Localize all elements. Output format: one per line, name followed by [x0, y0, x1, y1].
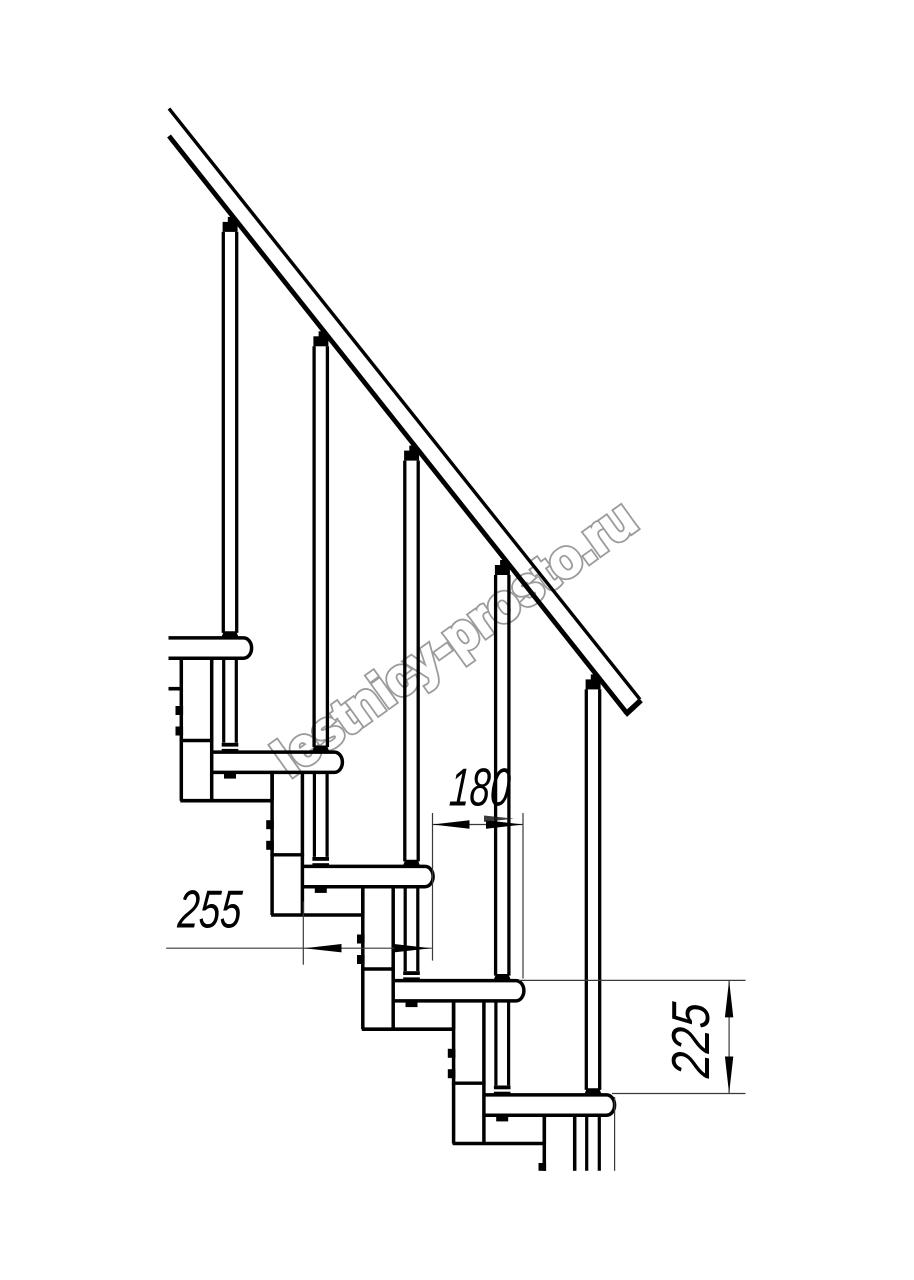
- svg-text:255: 255: [175, 879, 244, 939]
- svg-text:180: 180: [448, 758, 513, 818]
- svg-text:225: 225: [661, 1000, 721, 1081]
